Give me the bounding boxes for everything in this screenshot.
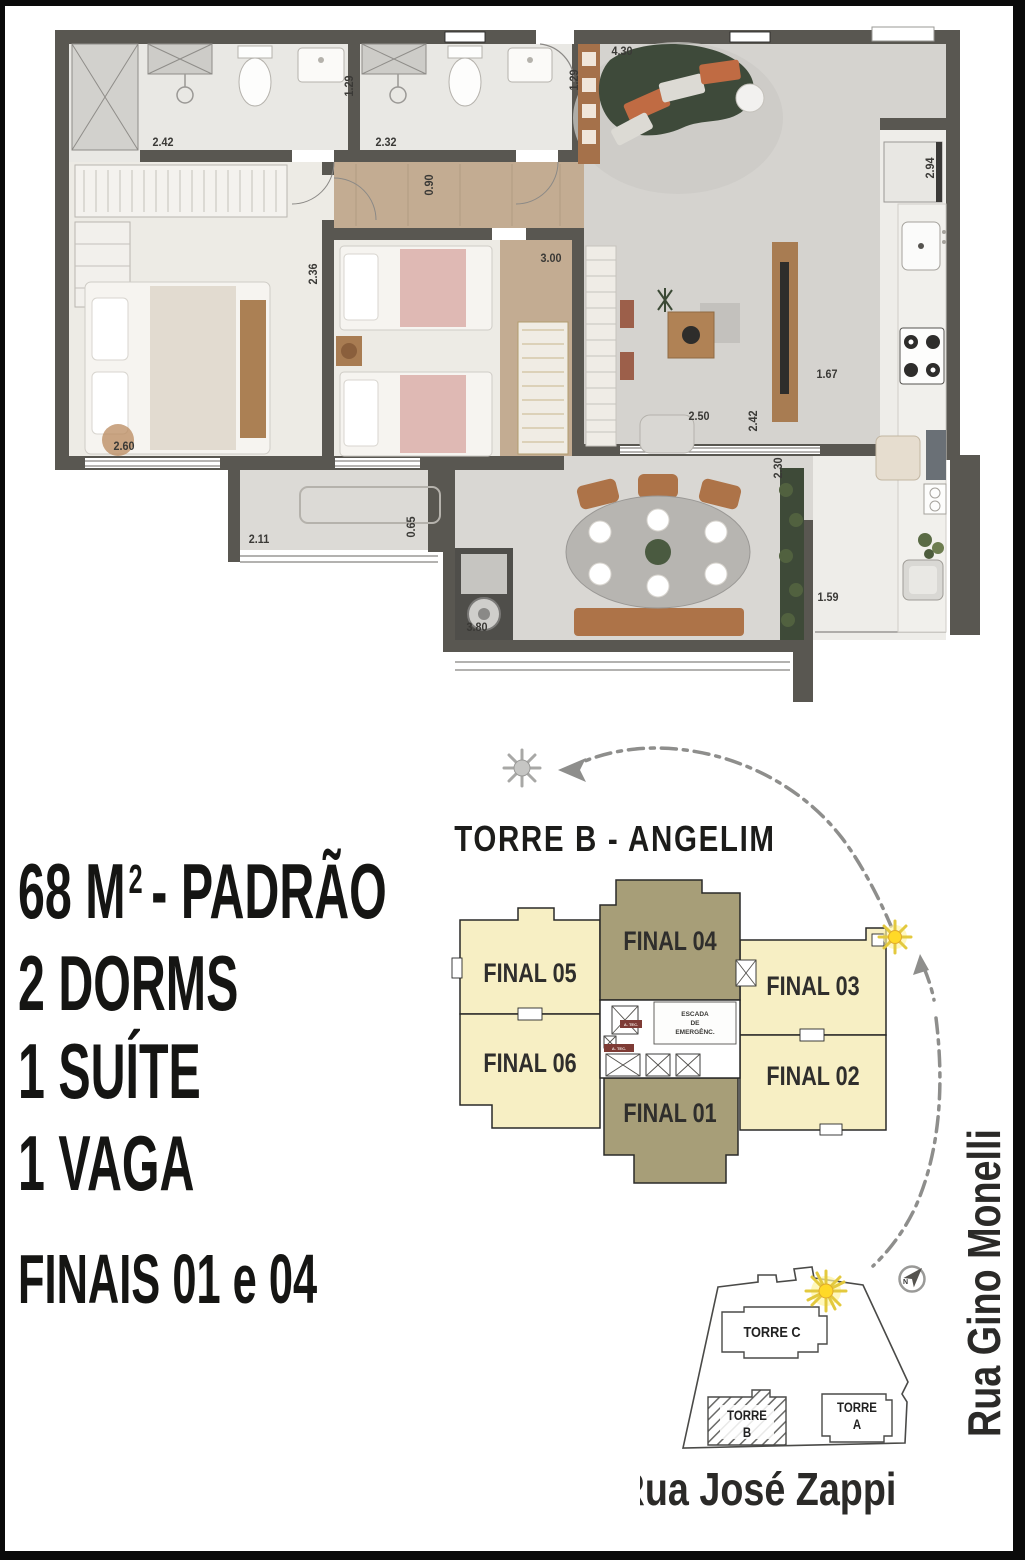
- street-label-right: Rua Gino Monelli: [958, 1129, 1009, 1437]
- dim-label: 0.90: [424, 174, 437, 195]
- tower-a-label: TORRE: [837, 1400, 877, 1415]
- sun-icon-gray: [504, 750, 540, 786]
- dim-label: 1.59: [817, 592, 838, 605]
- tower-b-label: TORRE: [727, 1408, 767, 1423]
- spec-finais: FINAIS 01 e 04: [18, 1244, 317, 1314]
- site-plan: TORRE C TORRE B TORRE A N Rua José Zappi…: [640, 1100, 1025, 1560]
- key-plan-title: TORRE B - ANGELIM: [454, 818, 766, 860]
- unit-label-final-02: FINAL 02: [766, 1062, 859, 1092]
- dim-label: 1.29: [344, 75, 357, 96]
- tec-label: A. TEC.: [624, 1022, 638, 1027]
- dim-label: 2.32: [375, 137, 396, 150]
- dim-label: 1.29: [569, 69, 582, 90]
- tower-b-label: B: [743, 1425, 751, 1440]
- tec-label: A. TEC.: [612, 1046, 626, 1051]
- dim-label: 2.42: [152, 137, 173, 150]
- vent-box: [872, 27, 934, 41]
- spec-area: 68 M2- PADRÃO: [18, 852, 387, 930]
- dim-label: 2.60: [113, 441, 134, 454]
- unit-label-final-05: FINAL 05: [483, 959, 576, 989]
- tower-c-label: TORRE C: [743, 1323, 800, 1340]
- unit-label-final-04: FINAL 04: [623, 927, 717, 957]
- dim-label: 0.65: [406, 516, 419, 538]
- dim-label: 2.11: [249, 534, 270, 547]
- stairs-label: EMERGÊNC.: [675, 1027, 715, 1036]
- compass-icon: N: [900, 1263, 928, 1291]
- street-label-bottom: Rua José Zappi: [640, 1463, 896, 1514]
- page: 2.42 1.29 2.32 1.29 0.90 4.30 2.94 3.00 …: [0, 0, 1025, 1560]
- floor-plan: 2.42 1.29 2.32 1.29 0.90 4.30 2.94 3.00 …: [45, 25, 985, 705]
- spec-dorms: 2 DORMS: [18, 944, 238, 1022]
- spec-area-suffix: - PADRÃO: [151, 847, 387, 935]
- stairs-label: DE: [690, 1020, 700, 1027]
- spec-vaga: 1 VAGA: [18, 1124, 194, 1202]
- dim-label: 2.36: [308, 263, 321, 284]
- suite-furniture: [75, 165, 287, 456]
- compass-north-label: N: [903, 1279, 908, 1286]
- sun-icon: [806, 1271, 846, 1311]
- unit-label-final-06: FINAL 06: [483, 1049, 576, 1079]
- shaft-icon: [72, 44, 138, 150]
- dim-label: 4.30: [611, 46, 632, 59]
- dim-label: 2.42: [748, 410, 761, 431]
- spec-area-value: 68 M: [18, 847, 126, 935]
- dim-label: 3.80: [466, 622, 487, 635]
- dim-label: 2.94: [925, 157, 938, 179]
- stairs-label: ESCADA: [681, 1011, 709, 1018]
- dim-label: 1.67: [816, 369, 837, 382]
- dim-label: 2.30: [773, 457, 786, 478]
- dim-label: 3.00: [540, 253, 561, 266]
- arrow-icon: [558, 758, 586, 782]
- unit-label-final-03: FINAL 03: [766, 972, 859, 1002]
- tower-a-label: A: [853, 1417, 861, 1432]
- spec-area-sup: 2: [129, 856, 143, 902]
- dim-label: 2.50: [688, 411, 709, 424]
- spec-suite: 1 SUÍTE: [18, 1032, 201, 1110]
- arrow-icon: [913, 954, 929, 975]
